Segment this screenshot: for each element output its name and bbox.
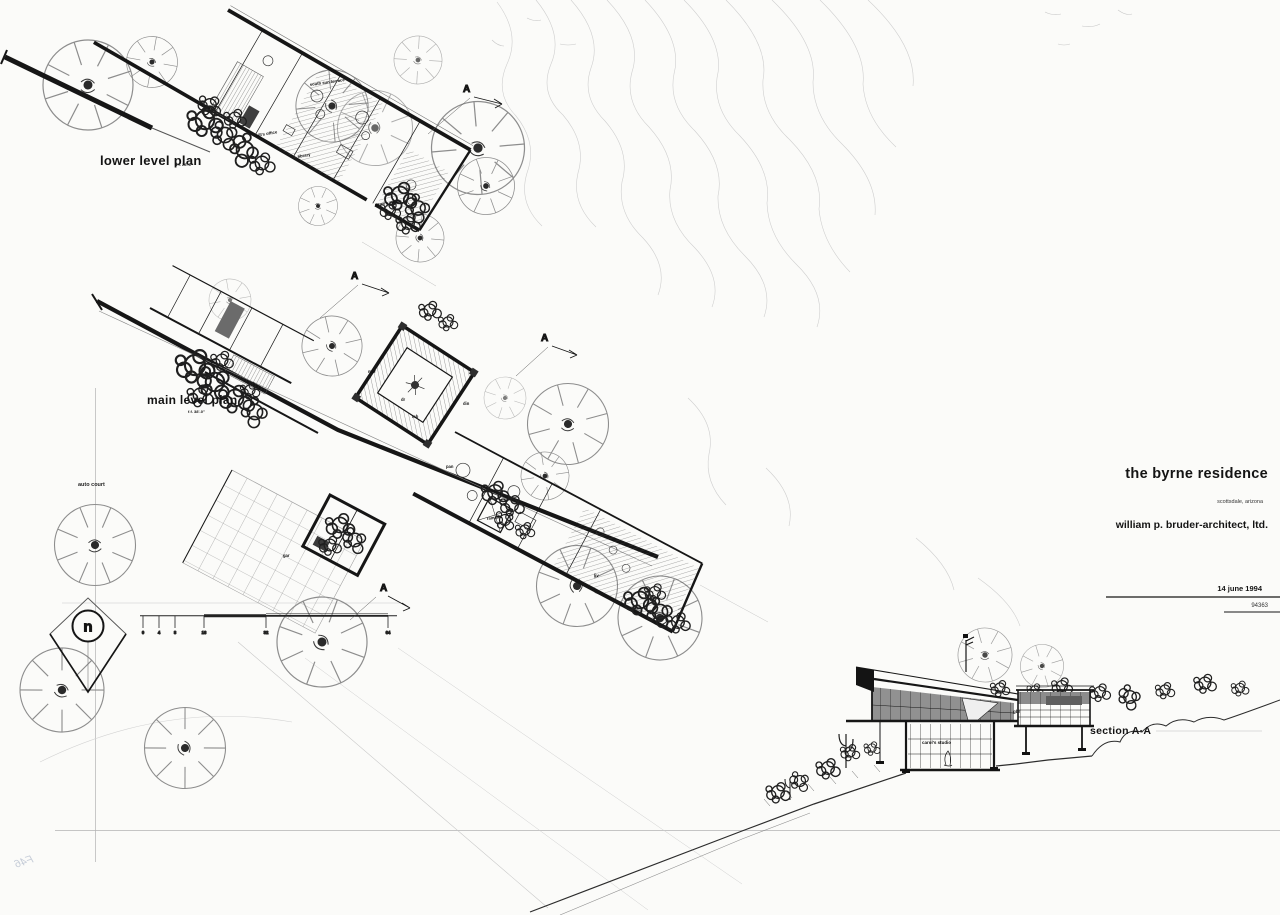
- section-drawing: [530, 634, 1280, 915]
- room-label-ramada: ramada: [486, 514, 502, 521]
- cut-letter: A: [463, 84, 470, 95]
- lower-level-elevation: f.f. 28'-0": [176, 162, 193, 167]
- auto-court-label: auto court: [78, 482, 105, 488]
- project-location: scottsdale, arizona: [1217, 499, 1264, 505]
- cut-marker-3: A: [516, 333, 577, 376]
- north-letter: n: [83, 619, 92, 636]
- site-trees: [5, 26, 1072, 798]
- cut-marker-4: A: [350, 583, 410, 620]
- construction-lines: [40, 10, 1280, 910]
- room-label-gar: gar: [283, 553, 290, 558]
- scale-tick-label: 32: [264, 630, 269, 635]
- plan-titles: lower level plan f.f. 28'-0" main level …: [78, 153, 1151, 737]
- section-title: section A·A: [1090, 725, 1151, 737]
- scale-bar: 048163264: [140, 614, 397, 636]
- scale-bar-ticks: 048163264: [142, 616, 391, 635]
- drawing-sheet: n 048163264 A A A A lo: [0, 0, 1280, 915]
- scale-tick-label: 64: [386, 630, 391, 635]
- room-label-mbr: mbr: [368, 369, 376, 374]
- job-number: 94363: [1251, 603, 1268, 609]
- project-title: the byrne residence: [1125, 466, 1268, 482]
- main-level-plan-drawing: [92, 266, 708, 634]
- cut-marker-1: A: [428, 84, 502, 134]
- drawing-date: 14 june 1994: [1217, 584, 1262, 593]
- scale-tick-label: 8: [174, 630, 177, 635]
- room-label-liv: liv: [594, 573, 599, 578]
- main-level-elevation: f.f. 38'-0": [188, 409, 205, 414]
- cut-letter: A: [541, 333, 548, 344]
- room-label-gbr: gbr: [1013, 709, 1020, 714]
- cut-marker-2: A: [320, 271, 389, 318]
- cut-letter: A: [351, 271, 358, 282]
- room-label-dr: dr: [401, 397, 406, 402]
- cut-letter: A: [380, 583, 387, 594]
- scale-tick-label: 16: [202, 630, 207, 635]
- north-arrow: n: [50, 598, 126, 692]
- main-level-plan-title: main level plan: [147, 393, 238, 407]
- scale-tick-label: 0: [142, 630, 145, 635]
- architect-name: william p. bruder-architect, ltd.: [1115, 519, 1268, 531]
- room-label-carol-s-studio: carol's studio: [922, 740, 951, 745]
- room-label-din: din: [463, 401, 470, 406]
- room-label-pan: pan: [446, 464, 454, 469]
- scale-tick-label: 4: [158, 630, 161, 635]
- title-block: the byrne residence scottsdale, arizona …: [1106, 466, 1280, 612]
- site-plan-sheet: n 048163264 A A A A lo: [0, 0, 1280, 915]
- room-label-mb: mb: [412, 414, 419, 419]
- room-label-bill-s-office: bill's office: [255, 129, 278, 138]
- handwritten-mark: F46: [12, 853, 35, 871]
